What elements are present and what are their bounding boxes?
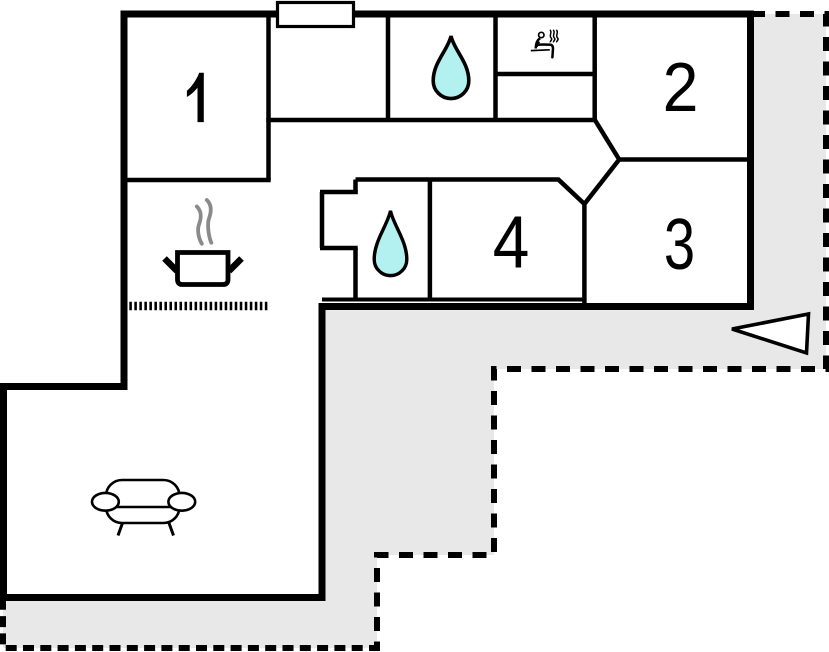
svg-text:4: 4	[493, 201, 530, 283]
svg-text:3: 3	[664, 204, 695, 284]
svg-text:2: 2	[663, 49, 699, 127]
